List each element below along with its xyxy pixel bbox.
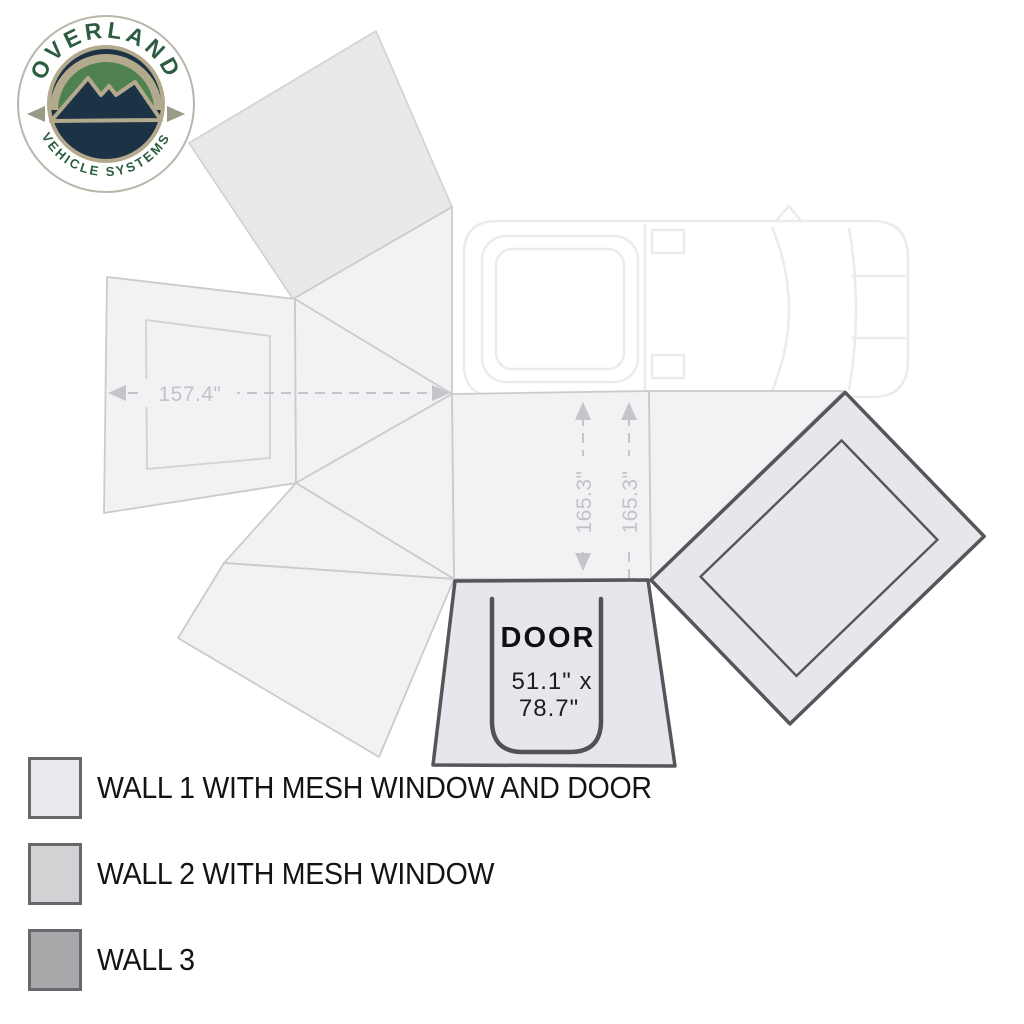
vehicle-mirror-top (775, 206, 802, 222)
vehicle-hood-divider (849, 228, 856, 390)
wall1-label: WALL 1 WITH MESH WINDOW AND DOOR (97, 770, 652, 806)
legend-item-wall3: WALL 3 (28, 929, 700, 991)
door-label: DOOR (501, 622, 596, 654)
wall3-label: WALL 3 (97, 942, 195, 978)
awning-panel-bottom-left (178, 563, 454, 757)
dimension-wall-width-label: 157.4" (158, 383, 221, 406)
legend-item-wall1: WALL 1 WITH MESH WINDOW AND DOOR (28, 757, 700, 819)
vehicle-topview-outline (464, 206, 908, 412)
dimension-wall-height-left-label: 165.3" (573, 470, 596, 533)
awning-diagram-page: 157.4" 165.3" 165.3" DOOR (0, 0, 1024, 1024)
dimension-wall-height-right-label: 165.3" (619, 470, 642, 533)
vehicle-bed-inner (496, 249, 624, 369)
ovs-logo: OVERLAND VEHICLE SYSTEMS (18, 16, 194, 192)
wall2-swatch (28, 843, 82, 905)
wall-legend: WALL 1 WITH MESH WINDOW AND DOOR WALL 2 … (28, 757, 700, 1015)
wall-panel-with-door: DOOR 51.1" x 78.7" (433, 580, 675, 766)
wall1-swatch (28, 757, 82, 819)
wall2-label: WALL 2 WITH MESH WINDOW (97, 856, 494, 892)
vehicle-windshield (772, 227, 789, 391)
legend-item-wall2: WALL 2 WITH MESH WINDOW (28, 843, 700, 905)
wall3-swatch (28, 929, 82, 991)
vehicle-cab-window (652, 230, 684, 253)
vehicle-body (464, 221, 908, 397)
vehicle-cab-window2 (652, 355, 684, 378)
vehicle-bed-outer (482, 236, 638, 382)
door-size-line2: 78.7" (519, 695, 579, 722)
door-size-line1: 51.1" x (512, 668, 593, 695)
